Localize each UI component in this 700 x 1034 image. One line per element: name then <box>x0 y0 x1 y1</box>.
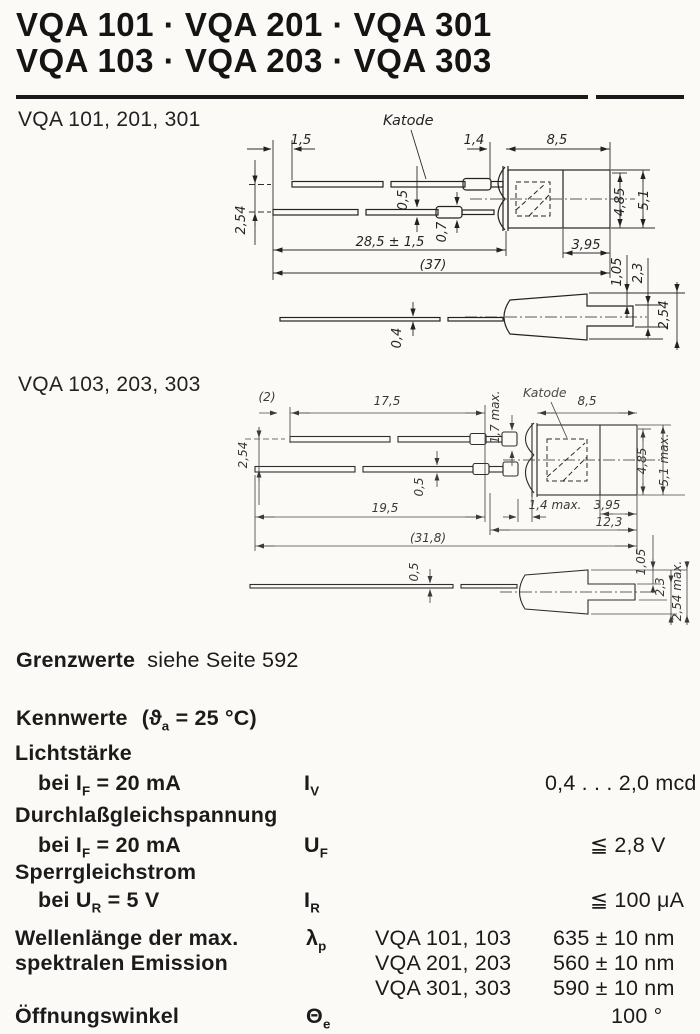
drawing2-figure: Katode (2) 17,5 1,7 max. 8,5 2,54 0,5 19… <box>215 385 700 633</box>
d2-katode-label: Katode <box>523 385 567 400</box>
d2-dim-rim-a: 1,05 <box>634 549 648 576</box>
page-title-line2: VQA 103 · VQA 203 · VQA 303 <box>16 42 492 80</box>
d2-top-view <box>255 423 660 497</box>
cond-lichtstaerke: bei IF = 20 mA <box>38 771 181 796</box>
types-row-1: VQA 101, 103 <box>375 926 511 951</box>
symbol-lambda-p: λp <box>306 926 327 951</box>
value-sperr: ≦ 100 μA <box>590 888 684 913</box>
d1-dim-lead-thick-b: 0,7 <box>435 221 450 242</box>
symbol-theta-e: Θe <box>306 1004 331 1029</box>
header-rule-left <box>16 95 588 99</box>
d1-katode-label: Katode <box>383 113 434 129</box>
param-oeffnungswinkel: Öffnungswinkel <box>15 1004 179 1029</box>
d2-dim-rim-c: 2,54 max. <box>670 561 684 622</box>
d2-dim-lead-pitch: 2,54 <box>236 442 250 469</box>
d1-dim-lead-pitch: 2,54 <box>234 206 249 235</box>
symbol-ir: IR <box>304 888 320 913</box>
d2-dim-body-h-inner: 4,85 <box>635 448 649 475</box>
symbol-uf: UF <box>304 833 328 858</box>
d1-dim-lead-len: 28,5 ± 1,5 <box>356 235 425 250</box>
types-row-2: VQA 201, 203 <box>375 951 511 976</box>
d2-dim-front-len: 12,3 <box>596 515 623 529</box>
param-durchlass: Durchlaßgleichspannung <box>15 803 277 828</box>
d2-dim-dome: 1,4 max. <box>529 498 582 512</box>
characteristics-heading: Kennwerte <box>16 706 128 730</box>
param-wellenlaenge-line2: spektralen Emission <box>15 951 228 976</box>
types-row-3: VQA 301, 303 <box>375 976 511 1001</box>
param-lichtstaerke: Lichtstärke <box>15 741 132 766</box>
d1-dim-body-h-outer: 5,1 <box>637 190 652 211</box>
cond-sperr: bei UR = 5 V <box>38 888 159 913</box>
d1-dim-rim-b: 2,3 <box>631 263 646 284</box>
header-rule-right <box>596 95 684 99</box>
d2-dim-lead-offset: (2) <box>259 390 276 404</box>
limits-line: Grenzwerte siehe Seite 592 <box>16 648 299 673</box>
datasheet-page: { "header": { "line1": "VQA 101 · VQA 20… <box>0 0 700 1034</box>
d1-dim-rim-a: 1,05 <box>610 258 625 287</box>
param-wellenlaenge-line1: Wellenlänge der max. <box>15 926 238 951</box>
characteristics-heading-line: Kennwerte(ϑa = 25 °C) <box>16 706 257 731</box>
drawing2-label: VQA 103, 203, 303 <box>18 373 201 397</box>
d2-dim-total-len: (31,8) <box>410 531 446 545</box>
symbol-iv: IV <box>304 771 319 796</box>
limits-rest: siehe Seite 592 <box>147 648 298 672</box>
d2-dimension-labels: Katode (2) 17,5 1,7 max. 8,5 2,54 0,5 19… <box>236 385 684 621</box>
value-oeffnungswinkel: 100 ° <box>611 1004 662 1029</box>
d1-dim-body-len: 8,5 <box>547 133 568 148</box>
d1-top-view <box>273 166 635 231</box>
d1-side-view <box>280 294 647 340</box>
value-lichtstaerke: 0,4 . . . 2,0 mcd <box>545 771 697 796</box>
limits-heading: Grenzwerte <box>16 648 135 672</box>
value-row-2: 560 ± 10 nm <box>553 951 675 976</box>
d2-dim-crimp-h: 1,7 max. <box>488 391 502 444</box>
d2-side-view <box>250 570 651 614</box>
param-sperr: Sperrgleichstrom <box>15 860 196 885</box>
d2-dim-rim-b: 2,3 <box>653 577 667 596</box>
page-title-line1: VQA 101 · VQA 201 · VQA 301 <box>16 6 492 44</box>
d2-dim-upper-lead-len: 17,5 <box>374 394 401 408</box>
d1-dim-rim-c: 2,54 <box>657 301 672 330</box>
d2-dim-body-h-outer: 5,1 max. <box>657 434 671 487</box>
d1-dim-lead-thick-a: 0,5 <box>396 190 411 211</box>
d2-dim-cap-len: 3,95 <box>594 498 621 512</box>
d2-dim-lead-thick: 0,5 <box>412 477 426 496</box>
d1-dim-total-len: (37) <box>420 258 447 273</box>
d2-dimension-lines <box>245 402 687 625</box>
d1-dim-lead-offset: 1,5 <box>291 133 312 148</box>
d2-dim-body-len: 8,5 <box>577 394 596 408</box>
characteristics-condition: (ϑa = 25 °C) <box>142 706 257 730</box>
value-row-1: 635 ± 10 nm <box>553 926 675 951</box>
value-row-3: 590 ± 10 nm <box>553 976 675 1001</box>
d2-dim-lower-lead-len: 19,5 <box>372 501 399 515</box>
d1-dim-dome: 1,4 <box>464 133 485 148</box>
drawing1-figure: Katode 1,5 1,4 8,5 0,5 0,7 28,5 ± 1,5 (3… <box>215 110 700 368</box>
d1-dimension-labels: Katode 1,5 1,4 8,5 0,5 0,7 28,5 ± 1,5 (3… <box>234 113 672 348</box>
value-durchlass: ≦ 2,8 V <box>590 833 666 858</box>
d1-dim-cap-len: 3,95 <box>572 238 601 253</box>
drawing1-label: VQA 101, 201, 301 <box>18 108 201 132</box>
cond-durchlass: bei IF = 20 mA <box>38 833 181 858</box>
d1-dim-lead-side-thick: 0,4 <box>390 328 405 349</box>
d1-dim-body-h-inner: 4,85 <box>613 188 628 217</box>
d2-dim-lead-side-thick: 0,5 <box>407 562 421 581</box>
